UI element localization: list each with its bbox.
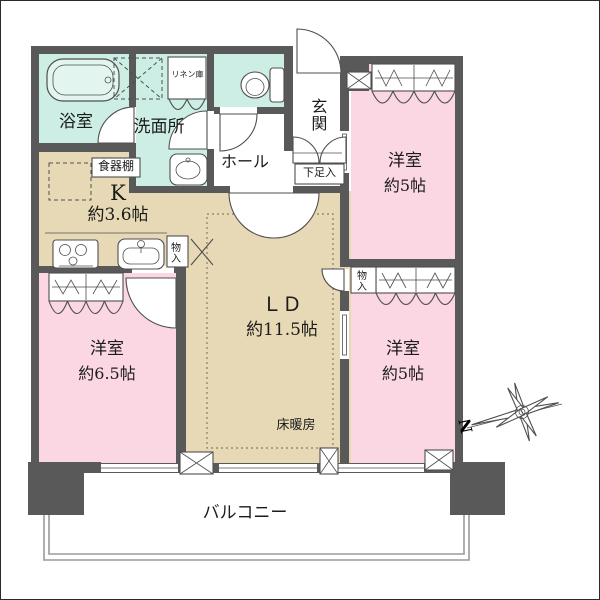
shoe-cabinet-door-right bbox=[320, 137, 346, 163]
kitchen-sink bbox=[118, 239, 164, 269]
toilet-door bbox=[220, 114, 257, 151]
shoe-cabinet-door-left bbox=[293, 137, 319, 163]
ld-label: ＬＤ bbox=[247, 293, 317, 316]
floor-plan: N 浴室 洗面所 リネン庫 ホール 玄関 下足入 食器棚 K 約3.6帖 ＬＤ … bbox=[0, 0, 600, 600]
pipe-space-3 bbox=[425, 450, 453, 470]
entrance-door bbox=[297, 29, 341, 73]
room-bottom-right-label: 洋室 bbox=[375, 340, 431, 360]
window-center bbox=[219, 464, 317, 472]
compass: N bbox=[455, 383, 562, 441]
entrance-label: 玄関 bbox=[308, 91, 326, 139]
floor-heating-label: 床暖房 bbox=[271, 419, 321, 434]
room-bottom-left-area: 約6.5帖 bbox=[67, 365, 147, 383]
balcony-label: バルコニー bbox=[195, 504, 295, 524]
sliding-door-bottom-right-room bbox=[340, 311, 349, 359]
meter-box bbox=[347, 72, 371, 89]
washroom-label: 洗面所 bbox=[119, 118, 199, 138]
hall-label: ホール bbox=[209, 153, 281, 171]
room-bottom-left-label: 洋室 bbox=[79, 340, 135, 360]
bath-label: 浴室 bbox=[41, 113, 111, 133]
room-bottom-right-area: 約5帖 bbox=[367, 365, 439, 383]
cupboard-label: 食器棚 bbox=[92, 160, 140, 174]
shoe-cabinet-label: 下足入 bbox=[295, 167, 344, 180]
pillar-right bbox=[450, 462, 505, 515]
room-top-right-label: 洋室 bbox=[377, 152, 433, 172]
room-top-right-area: 約5帖 bbox=[369, 177, 441, 195]
pipe-space-2 bbox=[320, 448, 338, 474]
pipe-space-1 bbox=[180, 452, 213, 474]
kitchen-label: K bbox=[98, 181, 138, 205]
linen-label: リネン庫 bbox=[169, 70, 206, 79]
bathtub bbox=[47, 59, 119, 101]
ld-area-label: 約11.5帖 bbox=[239, 321, 325, 341]
window-left bbox=[101, 464, 178, 472]
stove bbox=[53, 240, 98, 268]
vanity-sink bbox=[170, 154, 207, 185]
pillar-left bbox=[28, 462, 84, 515]
kitchen-area-label: 約3.6帖 bbox=[63, 206, 173, 226]
storage-right-label: 物入 bbox=[354, 268, 366, 294]
storage-left-label: 物入 bbox=[168, 239, 180, 267]
window-right bbox=[338, 464, 424, 472]
